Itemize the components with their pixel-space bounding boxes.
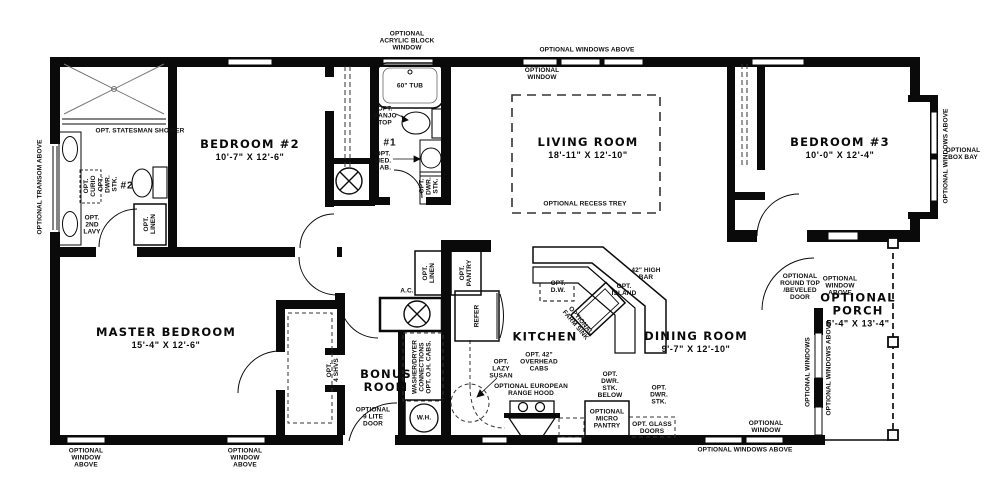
room-dimensions: 9'-7" X 12'-10" (644, 344, 748, 354)
room-title: OPTIONALPORCH (820, 291, 896, 317)
optional-window-living: OPTIONALWINDOW (525, 67, 559, 81)
optional-european-range-hood: OPTIONAL EUROPEANRANGE HOOD (494, 383, 568, 397)
room-label-optional-porch: OPTIONALPORCH5'-4" X 13'-4" (820, 291, 896, 328)
optional-round-top-beveled-door: OPTIONALROUND TOP/BEVELEDDOOR (780, 273, 820, 301)
opt-linen-bath2: OPT.LINEN (143, 214, 157, 234)
opt-island: OPT.ISLAND (612, 283, 637, 297)
optional-box-bay: OPTIONALBOX BAY (946, 147, 980, 161)
room-title: BEDROOM #2 (200, 138, 300, 151)
opt-42-overhead-cabs: OPT. 42"OVERHEADCABS (520, 351, 558, 372)
room-label-living-room: LIVING ROOM18'-11" X 12'-10" (538, 136, 639, 160)
room-label-dining-room: DINING ROOM9'-7" X 12'-10" (644, 330, 748, 354)
room-dimensions: 15'-4" X 12'-6" (96, 340, 236, 350)
optional-windows-above-porch-side: OPTIONAL WINDOWS ABOVE (825, 320, 832, 415)
optional-windows-dining: OPTIONAL WINDOWS (804, 337, 811, 407)
room-label-bedroom-2: BEDROOM #210'-7" X 12'-6" (200, 138, 300, 162)
optional-recess-trey: OPTIONAL RECESS TREY (543, 200, 626, 207)
room-dimensions: 18'-11" X 12'-10" (538, 150, 639, 160)
optional-transom-above: OPTIONAL TRANSOM ABOVE (36, 139, 43, 234)
ac-label: A.C. (400, 287, 413, 294)
opt-statesman-shower: OPT. STATESMAN SHOWER (96, 127, 185, 134)
opt-2nd-lavy: OPT.2NDLAVY (83, 214, 100, 235)
room-label-bonus-room: BONUSROOM (360, 368, 412, 394)
bath-1-number: #1 (383, 139, 396, 150)
optional-windows-above-bottom: OPTIONAL WINDOWS ABOVE (697, 446, 792, 453)
optional-windows-above-top: OPTIONAL WINDOWS ABOVE (539, 46, 634, 53)
opt-dwr-stk-bath1: OPT.DWR.STK. (418, 177, 439, 195)
room-title: BONUSROOM (360, 368, 412, 394)
opt-banjo-top: OPT.BANJOTOP (373, 105, 396, 126)
room-title: KITCHEN (513, 330, 578, 343)
room-title: MASTER BEDROOM (96, 326, 236, 339)
room-title: DINING ROOM (644, 330, 748, 343)
optional-acrylic-block-window: OPTIONALACRYLIC BLOCKWINDOW (380, 30, 435, 51)
washer-dryer-connections: WASHER/DRYERCONNECTIONSOPT. O.H. CABS. (411, 340, 432, 394)
opt-4-shvs: OPT.4 SHVS (326, 358, 340, 382)
optional-window-dining-bottom: OPTIONALWINDOW (749, 420, 783, 434)
opt-curio: OPT.CURIO (83, 175, 97, 196)
opt-dw: OPT.D.W. (551, 280, 566, 294)
room-title: LIVING ROOM (538, 136, 639, 149)
labels-layer: OPTIONAL TRANSOM ABOVEOPT. STATESMAN SHO… (0, 0, 1000, 477)
room-label-master-bedroom: MASTER BEDROOM15'-4" X 12'-6" (96, 326, 236, 350)
opt-linen-hall: OPT.LINEN (422, 263, 436, 283)
optional-window-above-left-1: OPTIONALWINDOWABOVE (69, 447, 103, 468)
42-high-bar: 42" HIGHBAR (631, 267, 660, 281)
opt-pantry: OPT.PANTRY (459, 260, 473, 287)
opt-glass-doors: OPT. GLASSDOORS (632, 421, 672, 435)
wh-label: W.H. (417, 414, 431, 421)
opt-med-cab: OPT.MED.CAB. (375, 150, 392, 171)
floor-plan: OPTIONAL TRANSOM ABOVEOPT. STATESMAN SHO… (0, 0, 1000, 477)
optional-micro-pantry: OPTIONALMICROPANTRY (590, 408, 624, 429)
tub-label: 60" TUB (397, 82, 423, 89)
opt-dwr-stk-dining: OPT.DWR.STK. (650, 384, 668, 405)
opt-dwr-stk-below: OPT.DWR.STK.BELOW (598, 371, 623, 399)
opt-lazy-susan: OPT.LAZYSUSAN (489, 358, 512, 379)
optional-9-lite-door: OPTIONAL9 LITEDOOR (356, 406, 390, 427)
refer-label: REFER (473, 305, 480, 328)
room-title: BEDROOM #3 (790, 136, 890, 149)
room-dimensions: 10'-7" X 12'-6" (200, 152, 300, 162)
bath-2-number: #2 (120, 182, 133, 193)
optional-window-above-left-2: OPTIONALWINDOWABOVE (228, 447, 262, 468)
opt-dwr-stk-bath2: OPT.DWR.STK. (97, 175, 118, 193)
room-dimensions: 5'-4" X 13'-4" (820, 319, 896, 329)
room-label-kitchen: KITCHEN (513, 330, 578, 343)
room-label-bedroom-3: BEDROOM #310'-0" X 12'-4" (790, 136, 890, 160)
room-dimensions: 10'-0" X 12'-4" (790, 150, 890, 160)
